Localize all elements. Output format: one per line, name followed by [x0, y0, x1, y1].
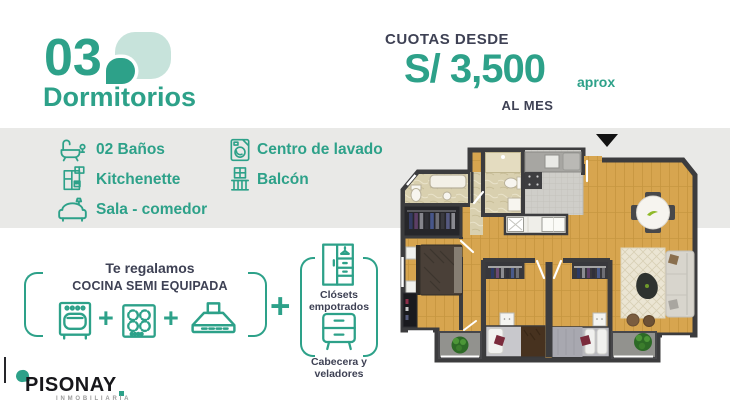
plus-icon: +	[270, 289, 290, 324]
bedroom-count: 03	[44, 30, 102, 86]
logo-divider	[4, 357, 6, 383]
feature-banos: 02 Baños	[96, 141, 165, 159]
nightstand-icon	[318, 309, 360, 354]
kitchenette-icon	[61, 165, 87, 194]
washing-machine-icon	[228, 137, 252, 163]
feature-kitchenette: Kitchenette	[96, 171, 180, 189]
plus-icon: +	[98, 305, 114, 332]
kitchen-bracket-right	[248, 272, 267, 337]
leaf-small-icon	[106, 58, 135, 84]
logo-name: PISONAY	[25, 374, 117, 397]
range-hood-icon	[185, 301, 242, 338]
kitchen-bracket-left	[24, 272, 43, 337]
price-period: AL MES	[480, 98, 575, 113]
balcony-icon	[228, 166, 252, 195]
feature-centro-lavado: Centro de lavado	[257, 141, 383, 159]
oven-icon	[55, 298, 95, 343]
promo-headline: COCINA SEMI EQUIPADA	[28, 279, 272, 293]
price-amount: S/ 3,500	[404, 47, 545, 91]
price-label: CUOTAS DESDE	[385, 31, 509, 48]
bathtub-icon	[58, 136, 87, 164]
feature-balcon: Balcón	[257, 171, 309, 189]
sofa-icon	[56, 197, 89, 224]
logo-tagline: INMOBILIARIA	[56, 396, 131, 402]
bedroom-title: Dormitorios	[43, 82, 196, 113]
extra-cabecera-label: Cabecera y veladores	[301, 356, 377, 381]
feature-sala-comedor: Sala - comedor	[96, 201, 207, 219]
plus-icon: +	[163, 305, 179, 332]
flyer: 03 Dormitorios CUOTAS DESDE S/ 3,500 apr…	[0, 0, 730, 411]
cooktop-icon	[119, 302, 159, 340]
promo-intro: Te regalamos	[60, 260, 240, 276]
price-approx: aprox	[577, 74, 615, 90]
closet-icon	[317, 242, 359, 289]
floorplan-image	[400, 135, 700, 375]
